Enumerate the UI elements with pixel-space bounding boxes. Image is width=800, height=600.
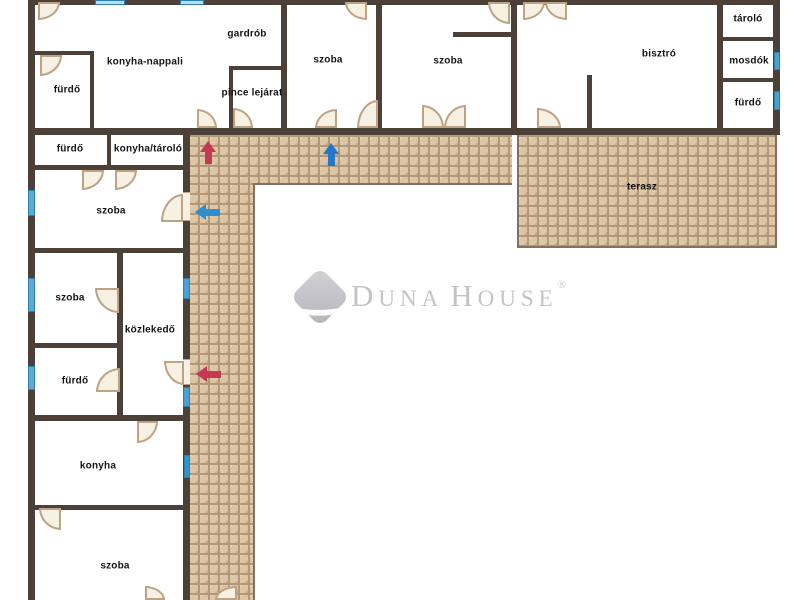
- wall: [107, 135, 111, 167]
- arrow-shaft: [207, 371, 221, 378]
- arrow-head-icon: [195, 204, 206, 220]
- room-label-szoba-3: szoba: [96, 206, 125, 217]
- room-label-szoba-5: szoba: [100, 561, 129, 572]
- door-arc: [115, 170, 137, 190]
- door-arc: [82, 170, 104, 190]
- room-label-szoba-1: szoba: [313, 55, 342, 66]
- door-arc: [422, 105, 444, 128]
- room-label-furdo-mid: fürdő: [57, 144, 84, 155]
- wall: [28, 343, 123, 348]
- door-arc: [444, 105, 466, 128]
- room-label-furdo-left: fürdő: [62, 376, 89, 387]
- door-opening: [183, 192, 190, 221]
- arrow-shaft: [205, 152, 212, 164]
- wall: [28, 248, 190, 253]
- wall: [511, 0, 517, 128]
- brand-initial: H: [450, 278, 477, 313]
- registered-mark: ®: [558, 279, 566, 291]
- duna-house-watermark: DUNAHOUSE®: [293, 272, 566, 318]
- wall: [28, 415, 190, 421]
- entrance-arrow-blue-left: [195, 204, 220, 220]
- door-arc: [40, 55, 62, 76]
- wall: [453, 32, 513, 37]
- wall: [587, 75, 592, 128]
- door-arc: [161, 194, 183, 222]
- room-label-bisztro: bisztró: [642, 49, 676, 60]
- door-arc: [38, 2, 60, 20]
- wall: [90, 51, 94, 128]
- wall: [28, 128, 780, 135]
- window: [774, 52, 780, 70]
- door-arc: [545, 2, 567, 20]
- room-label-konyha: konyha: [80, 461, 116, 472]
- door-arc: [197, 109, 217, 128]
- window: [180, 0, 204, 5]
- entrance-arrow-red-left: [196, 366, 221, 382]
- room-label-furdo-top-right: fürdő: [735, 98, 762, 109]
- room-label-mosdok: mosdók: [729, 56, 769, 67]
- window: [184, 455, 190, 478]
- wall: [723, 78, 774, 82]
- door-arc: [164, 361, 184, 385]
- wall: [117, 252, 123, 418]
- brand-word: OUSE: [478, 286, 558, 311]
- room-label-konyha-tarolo: konyha/tároló: [114, 144, 182, 155]
- door-arc: [137, 421, 158, 443]
- brand-initial: D: [351, 278, 378, 313]
- window: [183, 278, 190, 299]
- arrow-head-icon: [323, 143, 339, 154]
- door-arc: [357, 100, 378, 128]
- brand-word: UNA: [378, 286, 443, 311]
- door-arc: [488, 2, 510, 24]
- arrow-shaft: [206, 209, 220, 216]
- logo-swoosh-icon: [290, 284, 349, 316]
- paved-area-walkway-vertical: [190, 183, 255, 600]
- door-arc: [145, 586, 165, 600]
- window: [774, 91, 780, 110]
- wall: [281, 0, 287, 128]
- door-arc: [96, 368, 120, 392]
- door-opening: [183, 359, 190, 385]
- arrow-head-icon: [200, 141, 216, 152]
- door-arc: [233, 108, 253, 128]
- window: [28, 190, 35, 216]
- window: [183, 387, 190, 407]
- door-arc: [315, 109, 337, 128]
- room-label-szoba-4: szoba: [55, 293, 84, 304]
- arrow-head-icon: [196, 366, 207, 382]
- room-label-kozlekedo: közlekedő: [125, 325, 175, 336]
- window: [28, 366, 35, 390]
- duna-house-logo-text: DUNAHOUSE®: [351, 280, 566, 311]
- door-arc: [95, 288, 119, 313]
- door-arc: [345, 2, 367, 20]
- entrance-arrow-red-up: [200, 141, 216, 164]
- wall: [229, 66, 283, 70]
- door-arc: [39, 508, 61, 530]
- room-label-pince-lejarat: pince lejárat: [222, 88, 283, 99]
- wall: [28, 165, 190, 170]
- room-label-szoba-2: szoba: [433, 56, 462, 67]
- paved-area-walkway-horizontal: [190, 135, 512, 185]
- room-label-terasz: terasz: [627, 182, 657, 193]
- window: [28, 278, 35, 312]
- wall: [28, 0, 780, 5]
- wall: [723, 37, 774, 41]
- arrow-shaft: [328, 154, 335, 166]
- door-arc: [537, 108, 561, 128]
- wall: [717, 0, 723, 128]
- room-label-furdo-top-left: fürdő: [54, 85, 81, 96]
- room-label-gardrob: gardrób: [227, 29, 266, 40]
- room-label-konyha-nappali: konyha-nappali: [107, 57, 183, 68]
- duna-house-logo-icon: [290, 267, 349, 326]
- floor-plan: DUNAHOUSE® fürdőkonyha-nappaligardróbpin…: [0, 0, 800, 600]
- room-label-tarolo: tároló: [734, 14, 763, 25]
- door-arc: [523, 2, 545, 20]
- entrance-arrow-blue-up: [323, 143, 339, 166]
- window: [95, 0, 125, 5]
